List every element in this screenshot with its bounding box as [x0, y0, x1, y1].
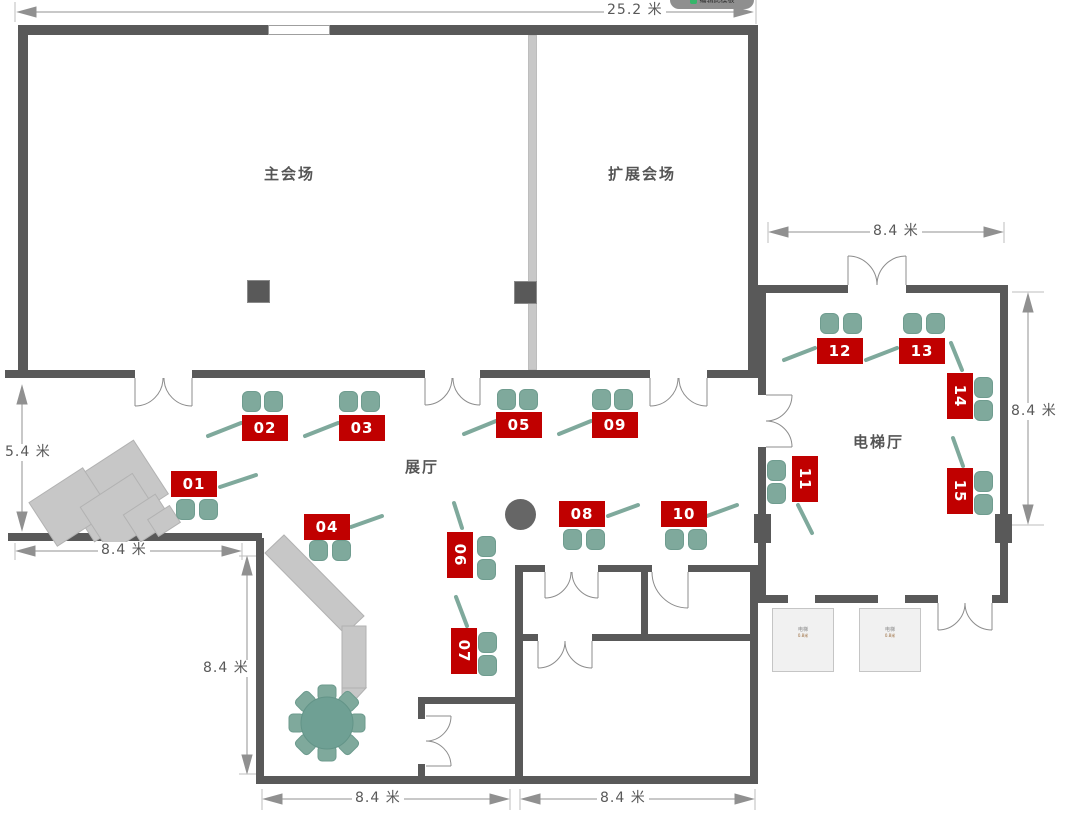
- chair: [519, 389, 538, 410]
- chair: [843, 313, 862, 334]
- dim-bottomleft-width: 8.4 米: [352, 790, 404, 807]
- booth-05-marker: 05: [496, 412, 542, 438]
- booth-03-marker: 03: [339, 415, 385, 441]
- booth-06-marker: 06: [447, 532, 473, 578]
- chair: [242, 391, 261, 412]
- elevator-1-size: 0.8米: [773, 633, 833, 639]
- chair: [974, 494, 993, 515]
- chair: [592, 389, 611, 410]
- dim-bottomright-width: 8.4 米: [597, 790, 649, 807]
- label-extension-hall: 扩展会场: [608, 163, 676, 184]
- dim-elevator-top-width: 8.4 米: [870, 223, 922, 240]
- dim-hall-height: 5.4 米: [2, 444, 54, 461]
- dim-elevator-right-height: 8.4 米: [1008, 403, 1060, 420]
- chair: [176, 499, 195, 520]
- chair: [361, 391, 380, 412]
- booth-10-marker: 10: [661, 501, 707, 527]
- round-table: [289, 685, 365, 761]
- elevator-2: 电梯 0.8米: [859, 608, 921, 672]
- booth-12-marker: 12: [817, 338, 863, 364]
- label-elevator-hall: 电梯厅: [853, 431, 904, 452]
- chair: [477, 559, 496, 580]
- chair: [199, 499, 218, 520]
- chair: [767, 460, 786, 481]
- booth-07-marker: 07: [451, 628, 477, 674]
- dim-leftroom-height: 8.4 米: [200, 660, 252, 677]
- chair: [563, 529, 582, 550]
- chair: [477, 536, 496, 557]
- chair: [478, 655, 497, 676]
- chair: [926, 313, 945, 334]
- chair: [688, 529, 707, 550]
- booth-01-marker: 01: [171, 471, 217, 497]
- plan-overlay: [0, 0, 1080, 817]
- projector-main-hall: [247, 280, 270, 303]
- projector-extension-hall: [514, 281, 537, 304]
- chair: [478, 632, 497, 653]
- label-main-hall: 主会场: [264, 163, 315, 184]
- edit-template-button[interactable]: 编辑此模板: [670, 0, 754, 9]
- chair: [665, 529, 684, 550]
- floor-plan-canvas: 编辑此模板: [0, 0, 1080, 817]
- chair: [614, 389, 633, 410]
- booth-14-marker: 14: [947, 373, 973, 419]
- chair: [767, 483, 786, 504]
- elevator-1: 电梯 0.8米: [772, 608, 834, 672]
- dim-top-width: 25.2 米: [604, 2, 666, 19]
- chair: [309, 540, 328, 561]
- chair: [974, 400, 993, 421]
- chair: [974, 377, 993, 398]
- chair: [497, 389, 516, 410]
- booth-09-marker: 09: [592, 412, 638, 438]
- chair: [264, 391, 283, 412]
- edit-template-icon: [690, 0, 697, 4]
- booth-02-marker: 02: [242, 415, 288, 441]
- booth-11-marker: 11: [792, 456, 818, 502]
- chair: [974, 471, 993, 492]
- pillar: [505, 499, 536, 530]
- chair: [820, 313, 839, 334]
- booth-15-marker: 15: [947, 468, 973, 514]
- elevator-2-size: 0.8米: [860, 633, 920, 639]
- chair: [903, 313, 922, 334]
- edit-template-label: 编辑此模板: [700, 0, 735, 5]
- dim-stage-width: 8.4 米: [98, 542, 150, 559]
- chair: [586, 529, 605, 550]
- booth-04-marker: 04: [304, 514, 350, 540]
- booth-13-marker: 13: [899, 338, 945, 364]
- chair: [332, 540, 351, 561]
- chair: [339, 391, 358, 412]
- label-exhibition-hall: 展厅: [405, 456, 439, 477]
- booth-08-marker: 08: [559, 501, 605, 527]
